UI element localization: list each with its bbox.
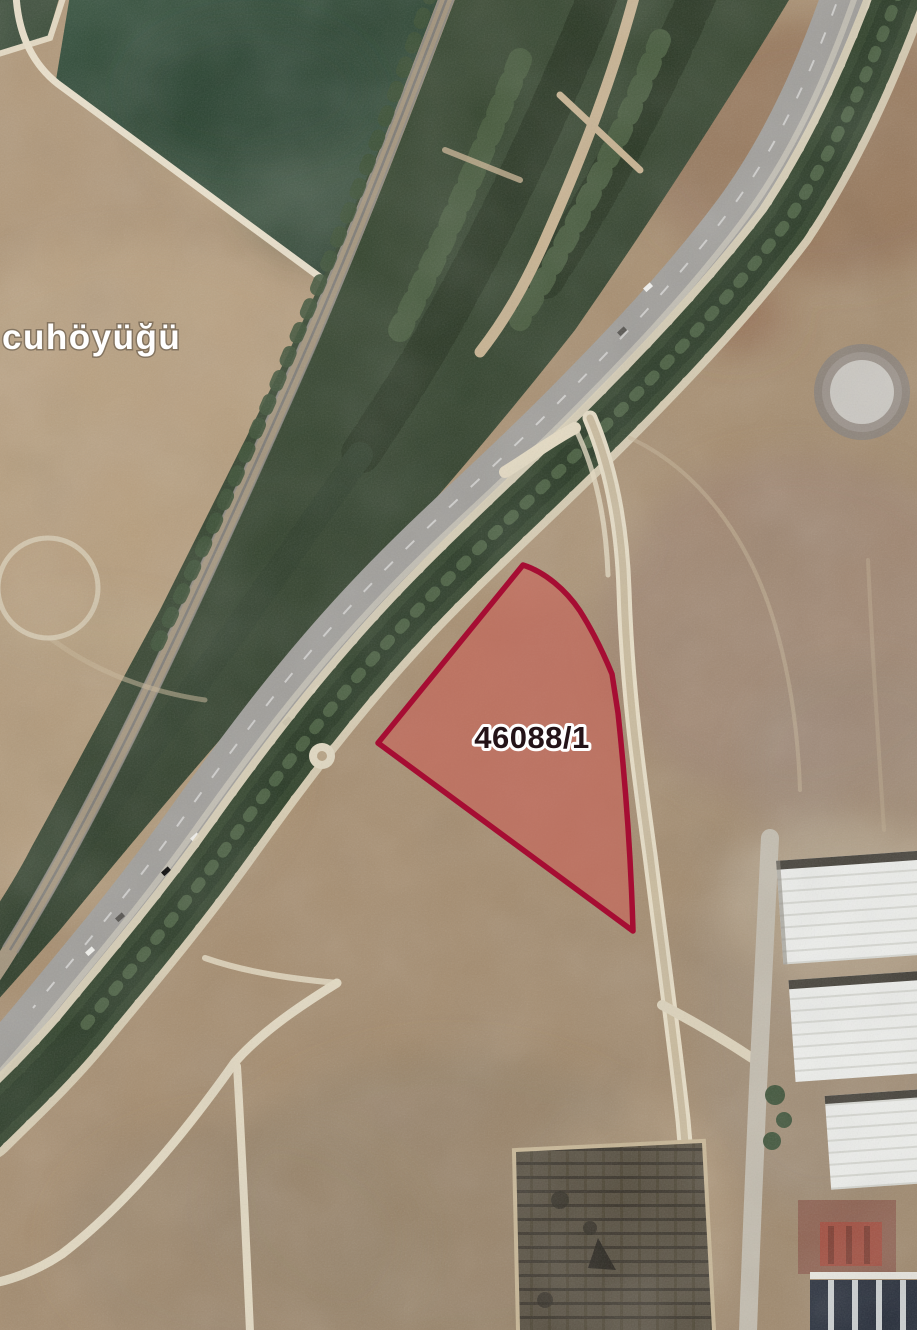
satellite-map[interactable]: 46088/1 cuhöyüğü: [0, 0, 917, 1330]
place-label: cuhöyüğü: [2, 318, 181, 357]
parcel-label: 46088/1: [474, 720, 590, 755]
